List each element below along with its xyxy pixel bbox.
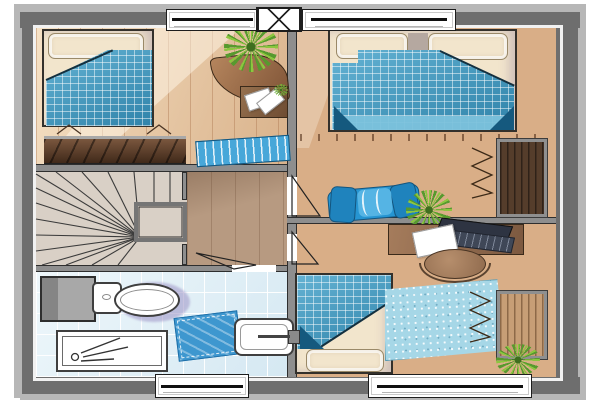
sketch-chevrons xyxy=(56,123,82,135)
eave-left xyxy=(14,4,22,398)
mini-plant xyxy=(274,84,288,96)
winder-staircase xyxy=(36,172,187,265)
faucet-spout xyxy=(258,335,290,338)
built-in-wardrobe-top-right xyxy=(497,139,547,217)
outer-wall-left xyxy=(22,12,36,394)
window-sill-line xyxy=(382,392,518,393)
lounger-flap xyxy=(329,186,357,224)
sideboard-wardrobe xyxy=(44,136,186,164)
window-top-left xyxy=(166,9,258,31)
window-sill-line xyxy=(315,26,443,27)
door-bedroom-top-right xyxy=(289,172,323,220)
door-bathroom xyxy=(194,250,258,272)
shower-spray xyxy=(56,330,168,372)
wall-bedroom1-south xyxy=(36,164,287,172)
clothes-zigzag xyxy=(468,290,494,344)
sketch-chevrons xyxy=(146,123,172,135)
clothes-zigzag xyxy=(470,146,496,200)
single-bed-pillow xyxy=(306,349,384,372)
window-top-right xyxy=(302,9,456,31)
window-glazing xyxy=(161,385,244,388)
service-duct xyxy=(40,276,96,322)
toilet-bowl xyxy=(114,283,180,317)
floor-plan xyxy=(0,0,600,400)
chimney-shaft xyxy=(256,7,302,32)
window-sill-line xyxy=(163,392,240,393)
window-glazing xyxy=(311,18,448,21)
window-bedroom-bottom xyxy=(368,374,532,398)
round-chair xyxy=(424,249,486,279)
eave-right xyxy=(578,4,586,398)
window-sill-line xyxy=(174,26,250,27)
window-glazing xyxy=(377,385,523,388)
bath-mat xyxy=(174,310,243,361)
toilet-tank-button xyxy=(102,294,111,300)
bed-sheet-edge xyxy=(336,116,512,130)
outer-wall-right xyxy=(556,12,578,394)
potted-plant xyxy=(496,344,540,376)
window-glazing xyxy=(172,18,253,21)
wall-bathroom-north-stub xyxy=(276,265,287,272)
door-bedroom-bottom-right xyxy=(289,228,321,268)
window-bathroom xyxy=(155,374,249,398)
